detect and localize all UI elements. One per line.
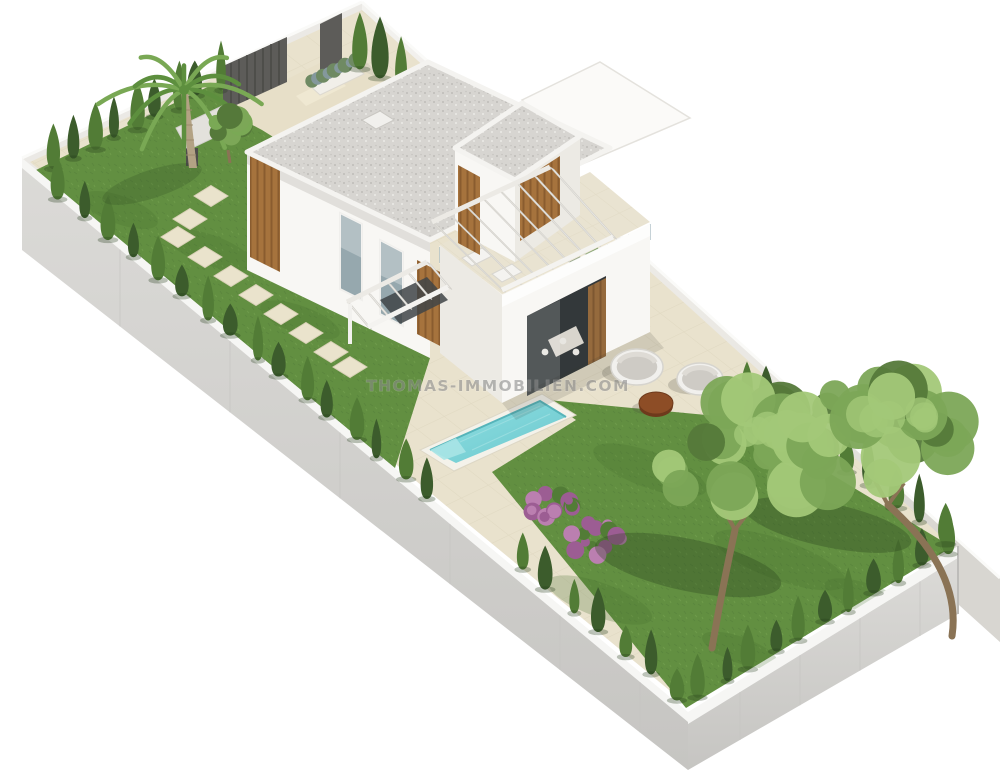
cypress-base-shadow: [200, 317, 216, 323]
cypress-bush: [88, 102, 103, 150]
cypress-base-shadow: [65, 155, 82, 161]
shrub-bloom: [527, 506, 537, 516]
cypress-base-shadow: [768, 648, 785, 654]
table-top: [639, 392, 673, 414]
cypress-base-shadow: [789, 638, 808, 644]
cypress-bush: [914, 474, 925, 523]
shrub-bloom: [565, 496, 573, 504]
cypress-base-shadow: [535, 586, 556, 592]
cypress-base-shadow: [935, 541, 956, 547]
cypress-base-shadow: [77, 215, 92, 221]
palm-crown: [179, 85, 189, 95]
cypress-base-shadow: [172, 293, 191, 299]
villa-3d-rendering: THOMAS-IMMOBILIEN.COM: [0, 0, 1000, 770]
cypress-base-shadow: [299, 397, 317, 403]
watermark-text: THOMAS-IMMOBILIEN.COM: [366, 377, 630, 395]
cypress-base-shadow: [269, 373, 289, 379]
cypress-base-shadow: [515, 566, 532, 572]
cypress-base-shadow: [220, 332, 241, 338]
small-tree-trunk: [228, 150, 230, 163]
wood-slat-panel-left: [250, 156, 280, 272]
rendering-canvas: THOMAS-IMMOBILIEN.COM: [0, 0, 1000, 770]
olive-foliage: [663, 470, 699, 506]
olive-highlight: [846, 396, 883, 433]
cypress-base-shadow: [890, 580, 906, 586]
shrub-bloom: [539, 512, 549, 522]
olive-foliage: [706, 461, 756, 511]
cypress-base-shadow: [251, 357, 265, 363]
cypress-bush: [938, 503, 953, 544]
cypress-base-shadow: [841, 609, 856, 615]
olive-highlight: [734, 422, 759, 447]
dining-chair: [560, 338, 567, 345]
cypress-base-shadow: [912, 519, 927, 525]
olive-highlight: [913, 408, 938, 433]
olive-foliage: [800, 454, 856, 510]
cypress-base-shadow: [721, 678, 735, 684]
cypress-base-shadow: [347, 437, 367, 443]
olive-foliage: [687, 423, 725, 461]
cypress-base-shadow: [48, 196, 67, 202]
cypress-base-shadow: [85, 147, 106, 153]
cypress-base-shadow: [815, 619, 835, 625]
dining-chair: [573, 349, 580, 356]
cypress-base-shadow: [318, 414, 335, 420]
cypress-base-shadow: [642, 671, 659, 677]
cypress-base-shadow: [370, 455, 383, 461]
cypress-base-shadow: [418, 496, 435, 502]
cypress-base-shadow: [128, 127, 148, 133]
cypress-base-shadow: [863, 590, 884, 596]
shrub-bloom: [566, 541, 584, 559]
cypress-bush: [109, 97, 119, 138]
cypress-base-shadow: [567, 610, 581, 616]
cypress-base-shadow: [738, 666, 758, 672]
cypress-base-shadow: [396, 476, 416, 482]
small-tree-foliage: [217, 103, 243, 129]
cypress-base-shadow: [939, 551, 958, 557]
cypress-base-shadow: [148, 277, 167, 283]
cypress-base-shadow: [349, 66, 370, 72]
cypress-base-shadow: [107, 135, 121, 141]
cypress-base-shadow: [912, 562, 931, 568]
cypress-base-shadow: [667, 697, 687, 703]
cypress-base-shadow: [588, 629, 608, 635]
interior-wood-wall: [588, 278, 606, 365]
cypress-base-shadow: [617, 654, 635, 660]
cypress-bush: [67, 115, 79, 159]
cypress-base-shadow: [126, 254, 141, 260]
shrub-bloom: [563, 525, 580, 542]
cypress-base-shadow: [98, 237, 119, 243]
cypress-base-shadow: [687, 695, 707, 701]
